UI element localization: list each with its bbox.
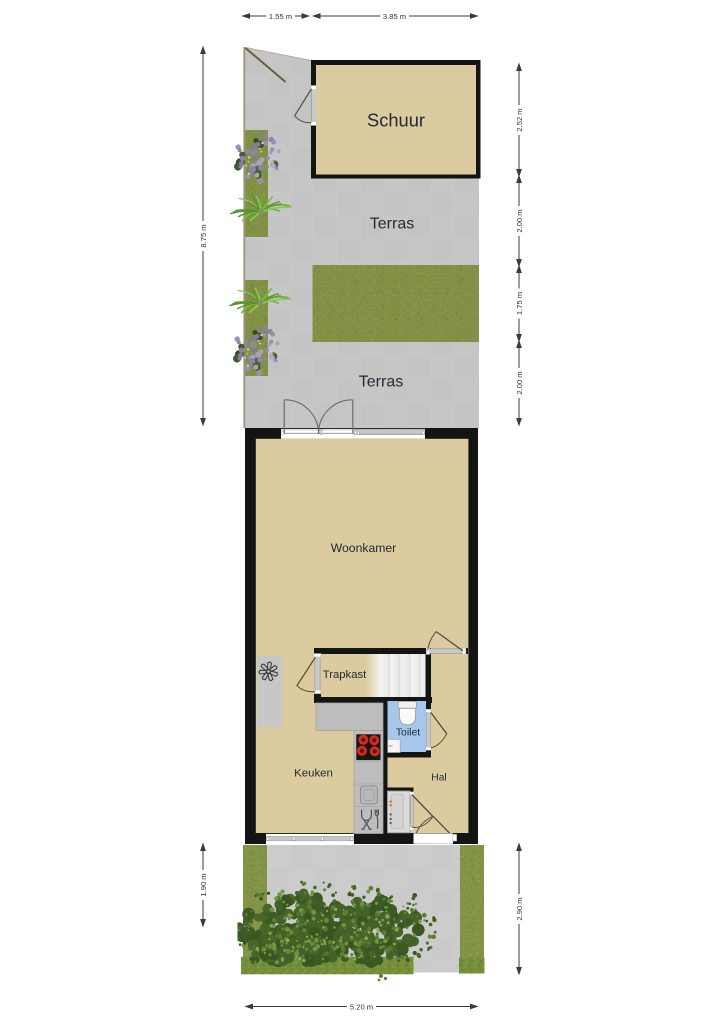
svg-text:1.55 m: 1.55 m — [269, 12, 292, 21]
svg-text:3.85 m: 3.85 m — [383, 12, 406, 21]
svg-text:Schuur: Schuur — [367, 110, 425, 131]
svg-text:Toilet: Toilet — [396, 728, 420, 739]
svg-text:Hal: Hal — [431, 773, 446, 784]
svg-text:Terras: Terras — [370, 216, 414, 233]
svg-text:5.20 m: 5.20 m — [350, 1002, 373, 1011]
svg-text:Terras: Terras — [359, 374, 403, 391]
svg-text:Trapkast: Trapkast — [323, 669, 367, 681]
svg-text:Keuken: Keuken — [294, 768, 333, 780]
svg-text:2.52 m: 2.52 m — [515, 108, 524, 131]
svg-text:8.75 m: 8.75 m — [199, 224, 208, 247]
svg-text:2.90 m: 2.90 m — [515, 897, 524, 920]
svg-text:Woonkamer: Woonkamer — [331, 541, 396, 555]
svg-text:2.00 m: 2.00 m — [515, 209, 524, 232]
svg-text:1.75 m: 1.75 m — [515, 292, 524, 315]
svg-text:2.00 m: 2.00 m — [515, 371, 524, 394]
svg-text:1.90 m: 1.90 m — [199, 873, 208, 896]
